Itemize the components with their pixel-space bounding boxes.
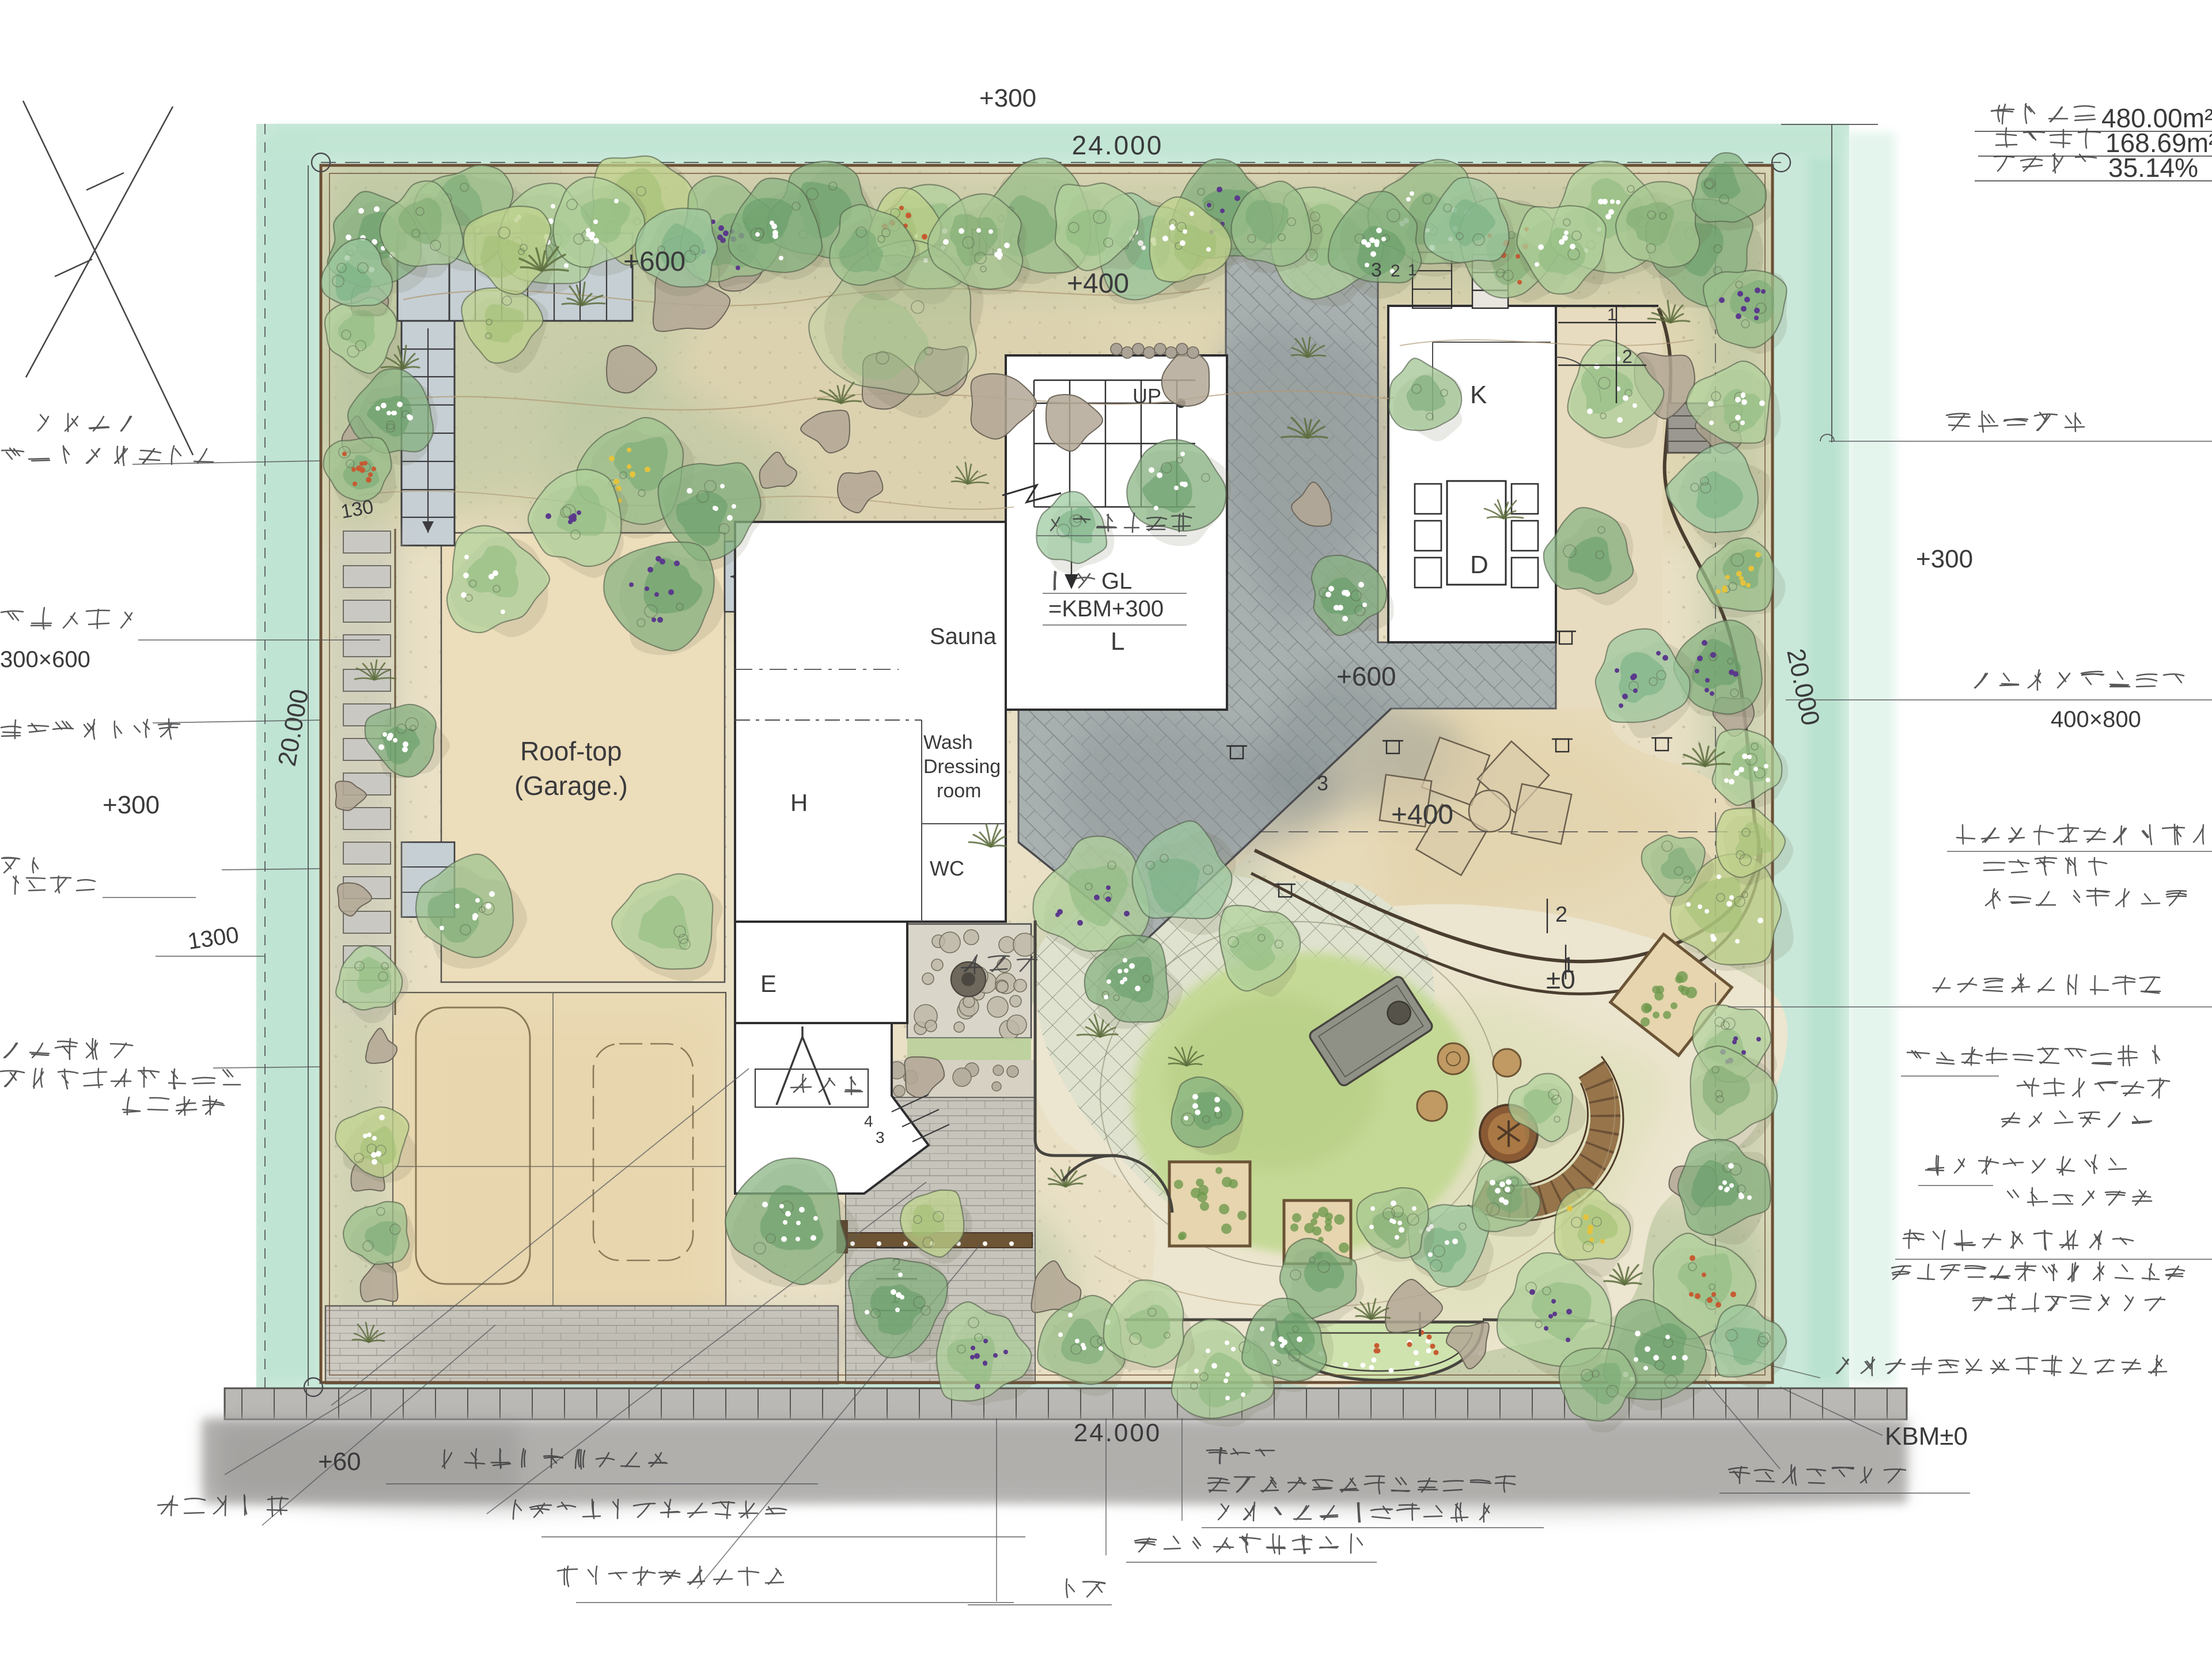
svg-text:35.14%: 35.14% bbox=[2108, 153, 2198, 183]
svg-text:room: room bbox=[937, 780, 981, 802]
svg-text:4: 4 bbox=[864, 1112, 873, 1130]
svg-text:3: 3 bbox=[1317, 771, 1328, 795]
svg-text:+300: +300 bbox=[103, 791, 160, 819]
svg-text:3: 3 bbox=[876, 1128, 885, 1146]
svg-text:2: 2 bbox=[1622, 346, 1633, 367]
svg-text:Roof-top: Roof-top bbox=[520, 736, 622, 766]
svg-text:2: 2 bbox=[1391, 262, 1400, 281]
svg-text:+400: +400 bbox=[1391, 800, 1453, 830]
svg-text:Wash: Wash bbox=[923, 732, 973, 753]
svg-text:KBM±0: KBM±0 bbox=[1885, 1422, 1968, 1450]
svg-text:D: D bbox=[1470, 551, 1488, 579]
svg-text:Sauna: Sauna bbox=[930, 624, 997, 649]
svg-text:WC: WC bbox=[930, 857, 964, 880]
svg-text:H: H bbox=[790, 789, 808, 816]
svg-text:3: 3 bbox=[1371, 259, 1382, 281]
svg-text:=KBM+300: =KBM+300 bbox=[1048, 596, 1164, 622]
svg-text:+400: +400 bbox=[1067, 268, 1129, 299]
svg-text:L: L bbox=[1111, 627, 1124, 656]
svg-text:UP: UP bbox=[1132, 384, 1161, 408]
svg-text:24.000: 24.000 bbox=[1074, 1419, 1162, 1447]
svg-text:+600: +600 bbox=[1336, 661, 1396, 691]
svg-text:+300: +300 bbox=[979, 84, 1036, 112]
svg-text:24.000: 24.000 bbox=[1072, 130, 1164, 160]
svg-text:±0: ±0 bbox=[1546, 964, 1575, 994]
svg-text:400×800: 400×800 bbox=[2051, 707, 2141, 732]
svg-text:2: 2 bbox=[1555, 903, 1567, 927]
svg-text:GL: GL bbox=[1101, 569, 1132, 594]
svg-text:300×600: 300×600 bbox=[0, 647, 90, 672]
svg-text:(Garage.): (Garage.) bbox=[514, 771, 628, 801]
svg-text:E: E bbox=[760, 970, 777, 997]
svg-text:Dressing: Dressing bbox=[923, 756, 1001, 778]
svg-text:1: 1 bbox=[1607, 305, 1617, 324]
svg-text:+60: +60 bbox=[318, 1448, 361, 1476]
svg-text:+300: +300 bbox=[1916, 545, 1973, 573]
svg-text:K: K bbox=[1470, 381, 1487, 409]
svg-text:1: 1 bbox=[1408, 261, 1417, 279]
svg-text:+600: +600 bbox=[623, 247, 685, 277]
